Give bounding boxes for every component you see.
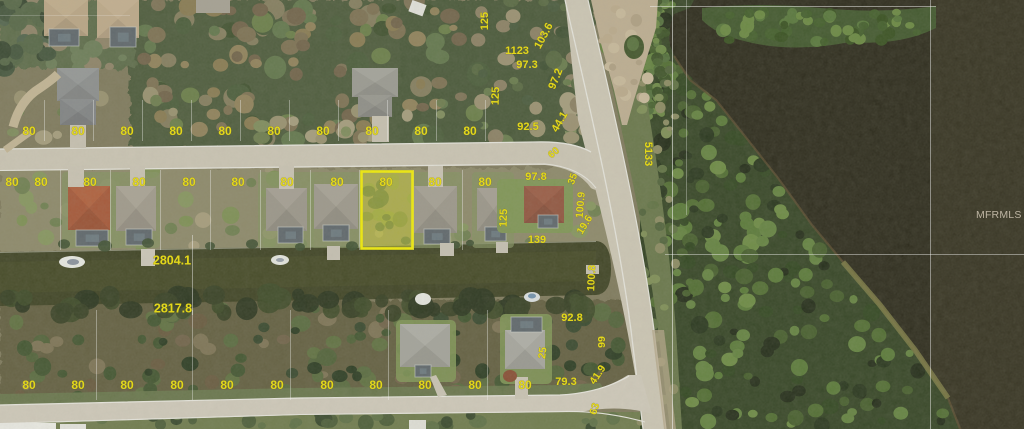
- svg-text:MFRMLS: MFRMLS: [976, 209, 1022, 221]
